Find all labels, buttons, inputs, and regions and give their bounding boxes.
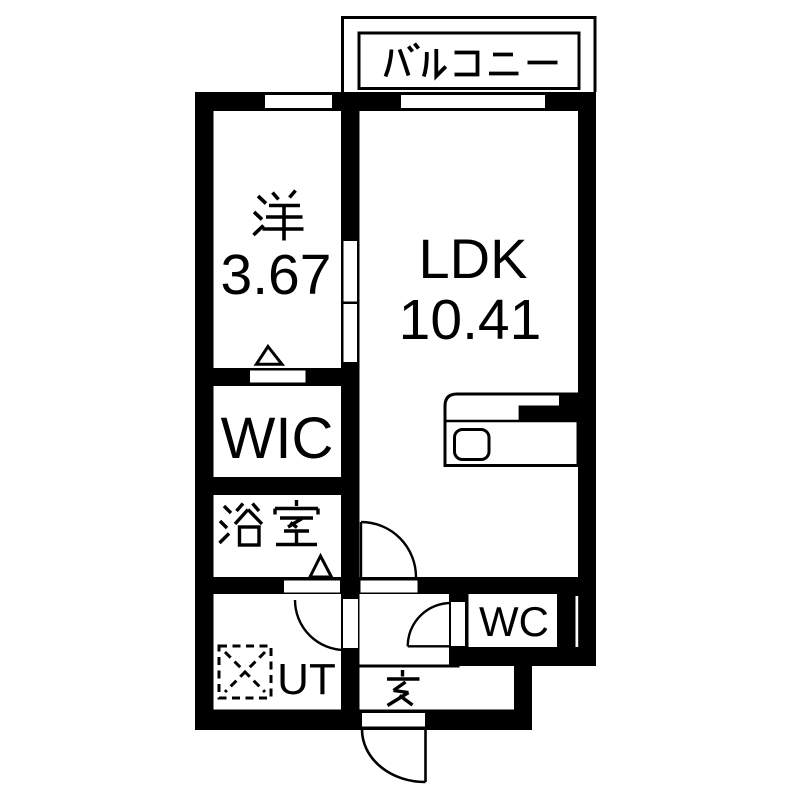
svg-text:UT: UT [277,655,336,704]
svg-text:WC: WC [479,598,549,645]
svg-text:10.41: 10.41 [399,288,542,352]
svg-text:3.67: 3.67 [221,243,332,307]
svg-text:LDK: LDK [419,227,528,290]
svg-text:WIC: WIC [221,406,334,471]
